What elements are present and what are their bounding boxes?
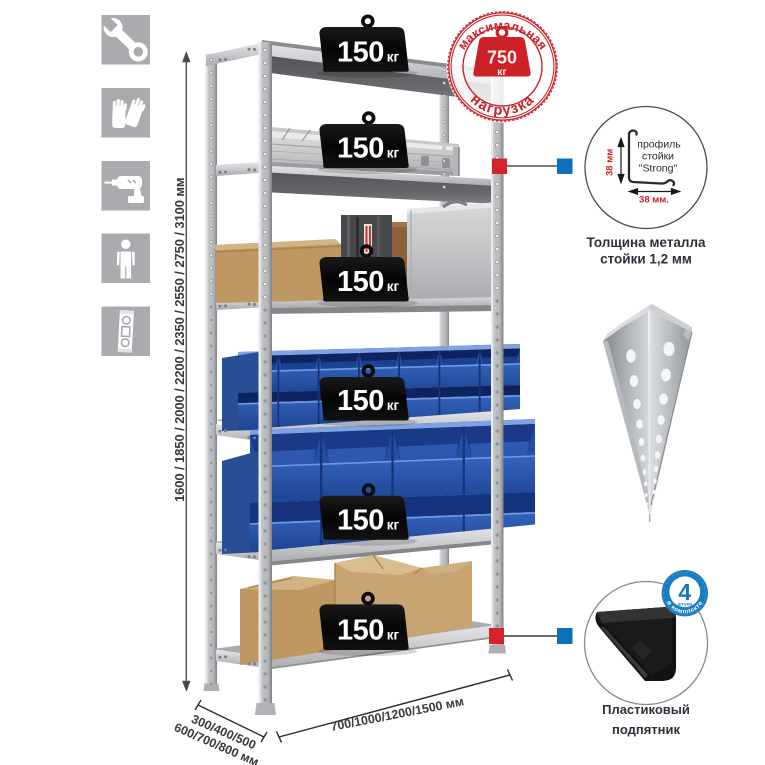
svg-text:Пластиковый: Пластиковый [602,702,690,717]
svg-text:Толщина металла: Толщина металла [586,235,706,250]
svg-text:кг: кг [387,279,400,294]
svg-text:подпятник: подпятник [612,722,681,737]
svg-text:750: 750 [487,48,517,68]
svg-text:150: 150 [337,266,384,298]
svg-text:кг: кг [497,66,507,78]
svg-text:"Strong": "Strong" [639,163,678,175]
svg-text:1600 / 1850 / 2000 / 2200 / 23: 1600 / 1850 / 2000 / 2200 / 2350 / 2550 … [172,178,187,502]
svg-text:150: 150 [337,385,384,417]
svg-text:38 мм.: 38 мм. [639,195,669,206]
svg-text:кг: кг [387,146,400,161]
svg-text:стойки: стойки [642,151,674,163]
svg-text:кг: кг [387,50,400,65]
svg-text:150: 150 [337,504,384,536]
svg-text:штуки: штуки [678,603,693,608]
svg-text:кг: кг [387,398,400,413]
svg-text:38 мм: 38 мм [605,149,616,176]
svg-text:150: 150 [337,615,384,647]
svg-text:4: 4 [678,579,691,605]
svg-text:150: 150 [337,133,384,165]
svg-text:150: 150 [337,37,384,69]
svg-text:кг: кг [387,517,400,532]
svg-text:профиль: профиль [637,139,681,151]
svg-text:стойки 1,2 мм: стойки 1,2 мм [600,252,692,267]
svg-text:кг: кг [387,628,400,643]
